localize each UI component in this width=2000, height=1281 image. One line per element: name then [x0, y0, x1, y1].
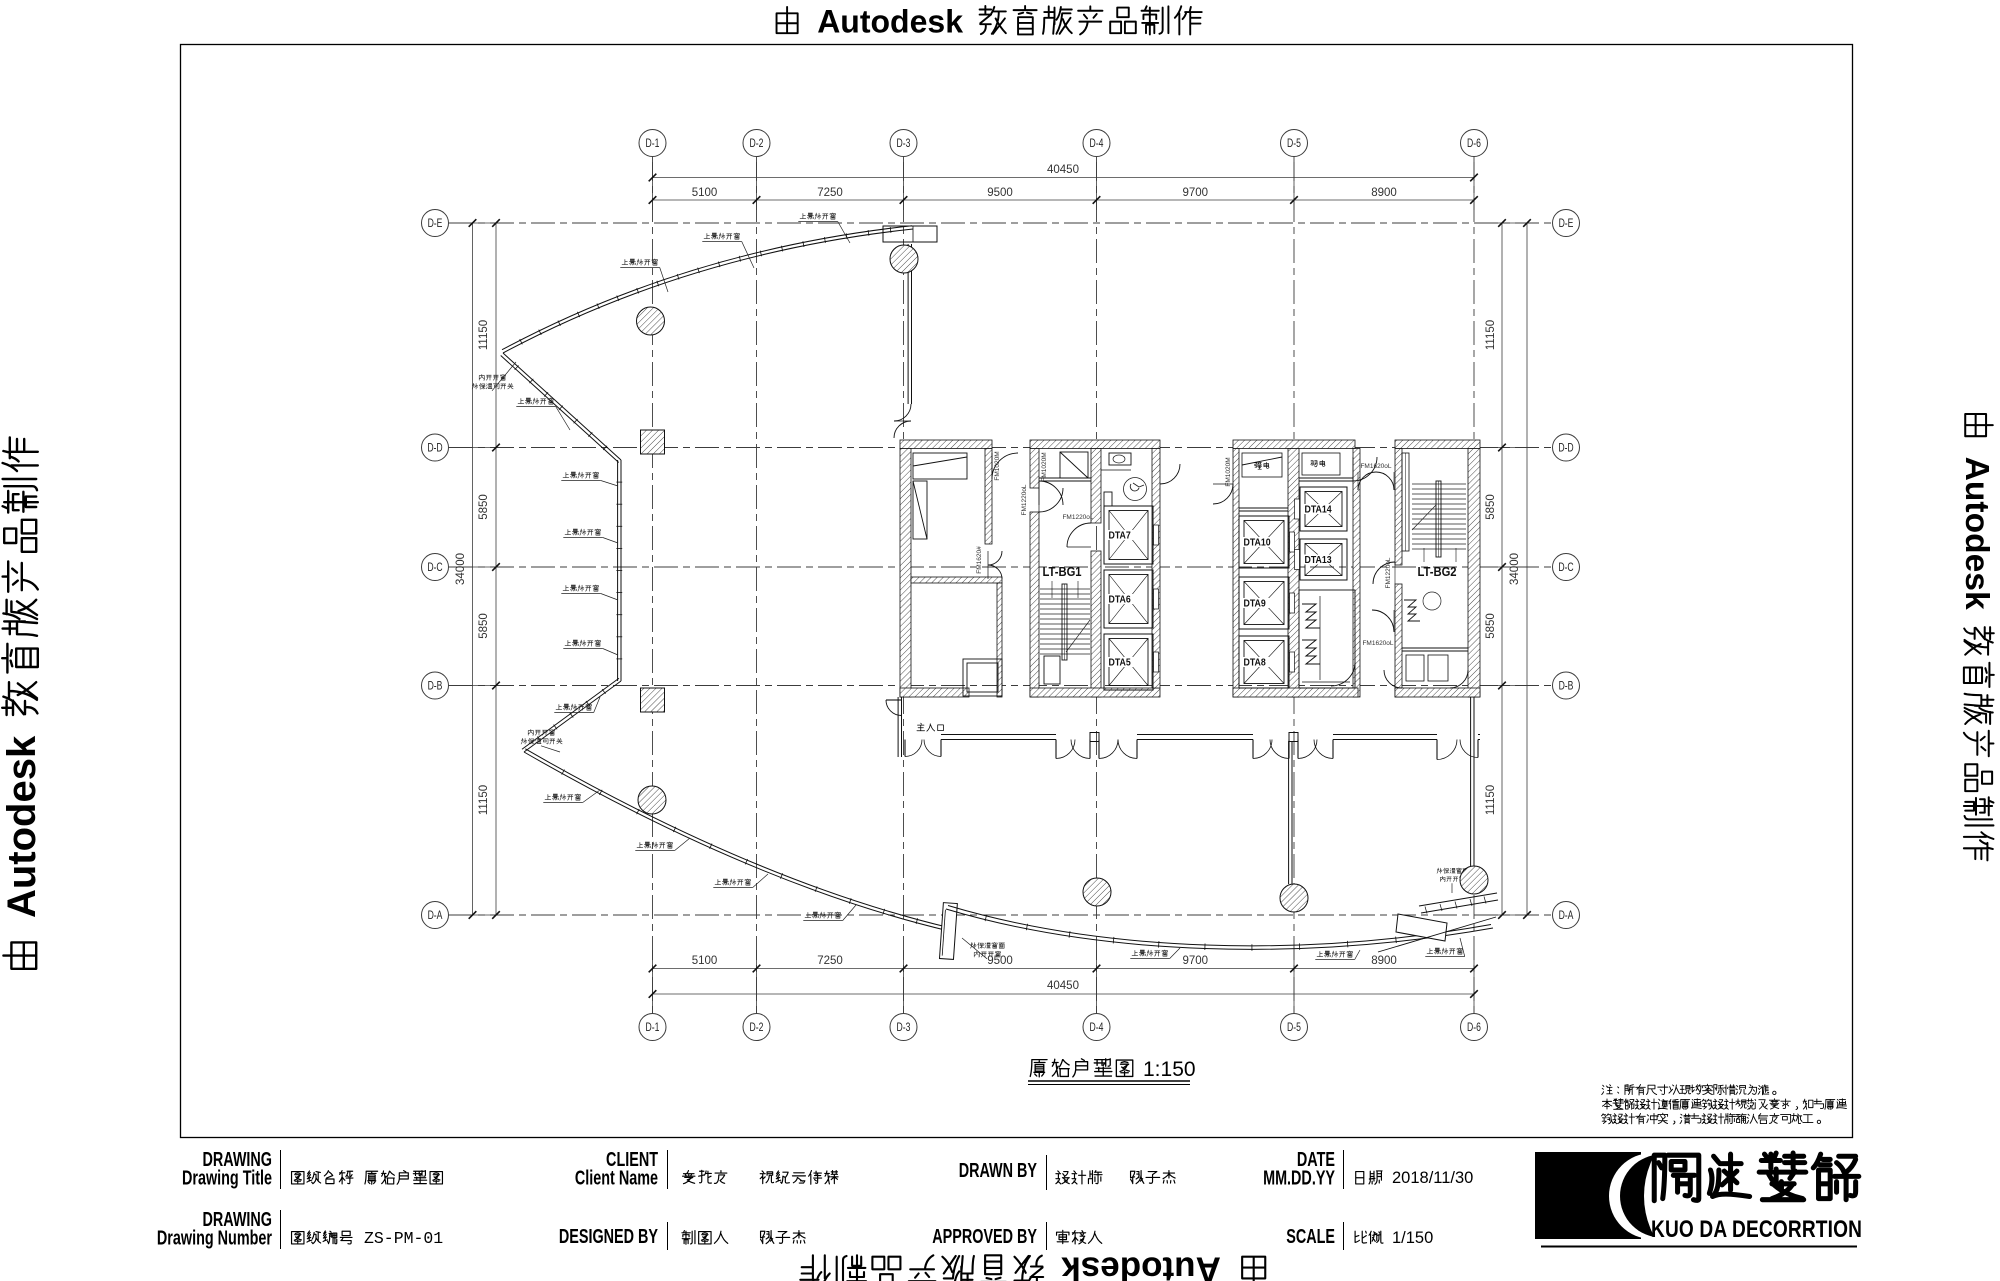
svg-text:9700: 9700: [1182, 955, 1208, 967]
svg-text:APPROVED BY: APPROVED BY: [932, 1225, 1037, 1248]
svg-text:D-2: D-2: [750, 1022, 764, 1035]
svg-text:ZS-PM-01: ZS-PM-01: [364, 1229, 443, 1248]
svg-text:DTA8: DTA8: [1244, 656, 1266, 668]
svg-text:FM1020M: FM1020M: [994, 451, 1001, 480]
svg-text:D-C: D-C: [1558, 562, 1574, 575]
svg-text:Client Name: Client Name: [575, 1166, 658, 1189]
svg-text:LT-BG1: LT-BG1: [1042, 564, 1081, 579]
svg-text:D-3: D-3: [897, 1022, 911, 1035]
svg-text:D-A: D-A: [428, 910, 443, 923]
svg-text:9700: 9700: [1182, 187, 1208, 199]
svg-text:7250: 7250: [817, 955, 843, 967]
svg-text:FM1620oL: FM1620oL: [1360, 463, 1391, 470]
svg-text:D-B: D-B: [1559, 681, 1574, 694]
svg-text:Autodesk: Autodesk: [1958, 457, 1995, 610]
svg-text:2018/11/30: 2018/11/30: [1392, 1169, 1473, 1187]
svg-text:FM1620#: FM1620#: [976, 546, 983, 574]
svg-text:FM1220oL: FM1220oL: [1021, 484, 1028, 515]
svg-text:D-6: D-6: [1467, 1022, 1481, 1035]
svg-text:11150: 11150: [1485, 320, 1497, 350]
svg-text:11150: 11150: [1485, 785, 1497, 815]
svg-text:Autodesk: Autodesk: [817, 3, 963, 39]
svg-text:DTA6: DTA6: [1109, 593, 1131, 605]
svg-text:FM1220oL: FM1220oL: [1062, 514, 1093, 521]
svg-text:8900: 8900: [1371, 955, 1397, 967]
svg-text:D-4: D-4: [1090, 1022, 1104, 1035]
svg-text:FM1020M: FM1020M: [1225, 457, 1232, 486]
svg-text:5850: 5850: [1485, 494, 1497, 520]
svg-text:11150: 11150: [478, 320, 490, 350]
svg-text:LT-BG2: LT-BG2: [1417, 564, 1456, 579]
svg-text:D-E: D-E: [1559, 218, 1574, 231]
svg-text:D-E: D-E: [428, 218, 443, 231]
svg-text:DRAWN BY: DRAWN BY: [959, 1159, 1038, 1182]
svg-text:D-1: D-1: [646, 1022, 660, 1035]
svg-text:DTA10: DTA10: [1244, 536, 1271, 548]
svg-text:5100: 5100: [692, 955, 718, 967]
svg-text:D-C: D-C: [427, 562, 443, 575]
svg-text:40450: 40450: [1047, 980, 1079, 992]
svg-text:34000: 34000: [1509, 553, 1521, 585]
svg-text:40450: 40450: [1047, 164, 1079, 176]
svg-text:34000: 34000: [455, 553, 467, 585]
svg-text:5850: 5850: [478, 494, 490, 520]
svg-text:Drawing Number: Drawing Number: [157, 1226, 272, 1249]
svg-text:9500: 9500: [987, 187, 1013, 199]
svg-text:D-D: D-D: [427, 443, 443, 456]
svg-text:Autodesk: Autodesk: [0, 735, 44, 918]
svg-text:DTA5: DTA5: [1109, 656, 1131, 668]
svg-text:Drawing Title: Drawing Title: [182, 1166, 272, 1189]
svg-text:D-A: D-A: [1559, 910, 1574, 923]
svg-text:D-4: D-4: [1090, 138, 1104, 151]
svg-text:SCALE: SCALE: [1286, 1225, 1335, 1248]
svg-text:MM.DD.YY: MM.DD.YY: [1263, 1166, 1335, 1189]
svg-text:D-1: D-1: [646, 138, 660, 151]
svg-text:DTA9: DTA9: [1244, 597, 1266, 609]
svg-text:Autodesk: Autodesk: [1061, 1250, 1221, 1281]
svg-text:D-2: D-2: [750, 138, 764, 151]
svg-text:8900: 8900: [1371, 187, 1397, 199]
svg-text:11150: 11150: [478, 785, 490, 815]
svg-text:D-5: D-5: [1287, 1022, 1301, 1035]
svg-text:DTA13: DTA13: [1305, 553, 1332, 565]
svg-text:5850: 5850: [1485, 613, 1497, 639]
svg-text:FM1620oL: FM1620oL: [1362, 640, 1393, 647]
svg-text:DTA7: DTA7: [1109, 529, 1131, 541]
svg-text:D-D: D-D: [1558, 443, 1574, 456]
svg-text:DESIGNED BY: DESIGNED BY: [559, 1225, 658, 1248]
svg-text:D-6: D-6: [1467, 138, 1481, 151]
svg-text:FM1220oL: FM1220oL: [1385, 557, 1392, 588]
svg-text:5850: 5850: [478, 613, 490, 639]
svg-text:D-3: D-3: [897, 138, 911, 151]
svg-text:5100: 5100: [692, 187, 718, 199]
svg-text:1/150: 1/150: [1392, 1229, 1433, 1247]
svg-text:1:150: 1:150: [1143, 1058, 1196, 1081]
svg-text:D-5: D-5: [1287, 138, 1301, 151]
svg-text:KUO DA DECORRTION: KUO DA DECORRTION: [1651, 1215, 1862, 1243]
svg-text:FM1020M: FM1020M: [1041, 452, 1048, 481]
svg-text:7250: 7250: [817, 187, 843, 199]
svg-text:DTA14: DTA14: [1305, 503, 1333, 515]
svg-text:D-B: D-B: [428, 681, 443, 694]
